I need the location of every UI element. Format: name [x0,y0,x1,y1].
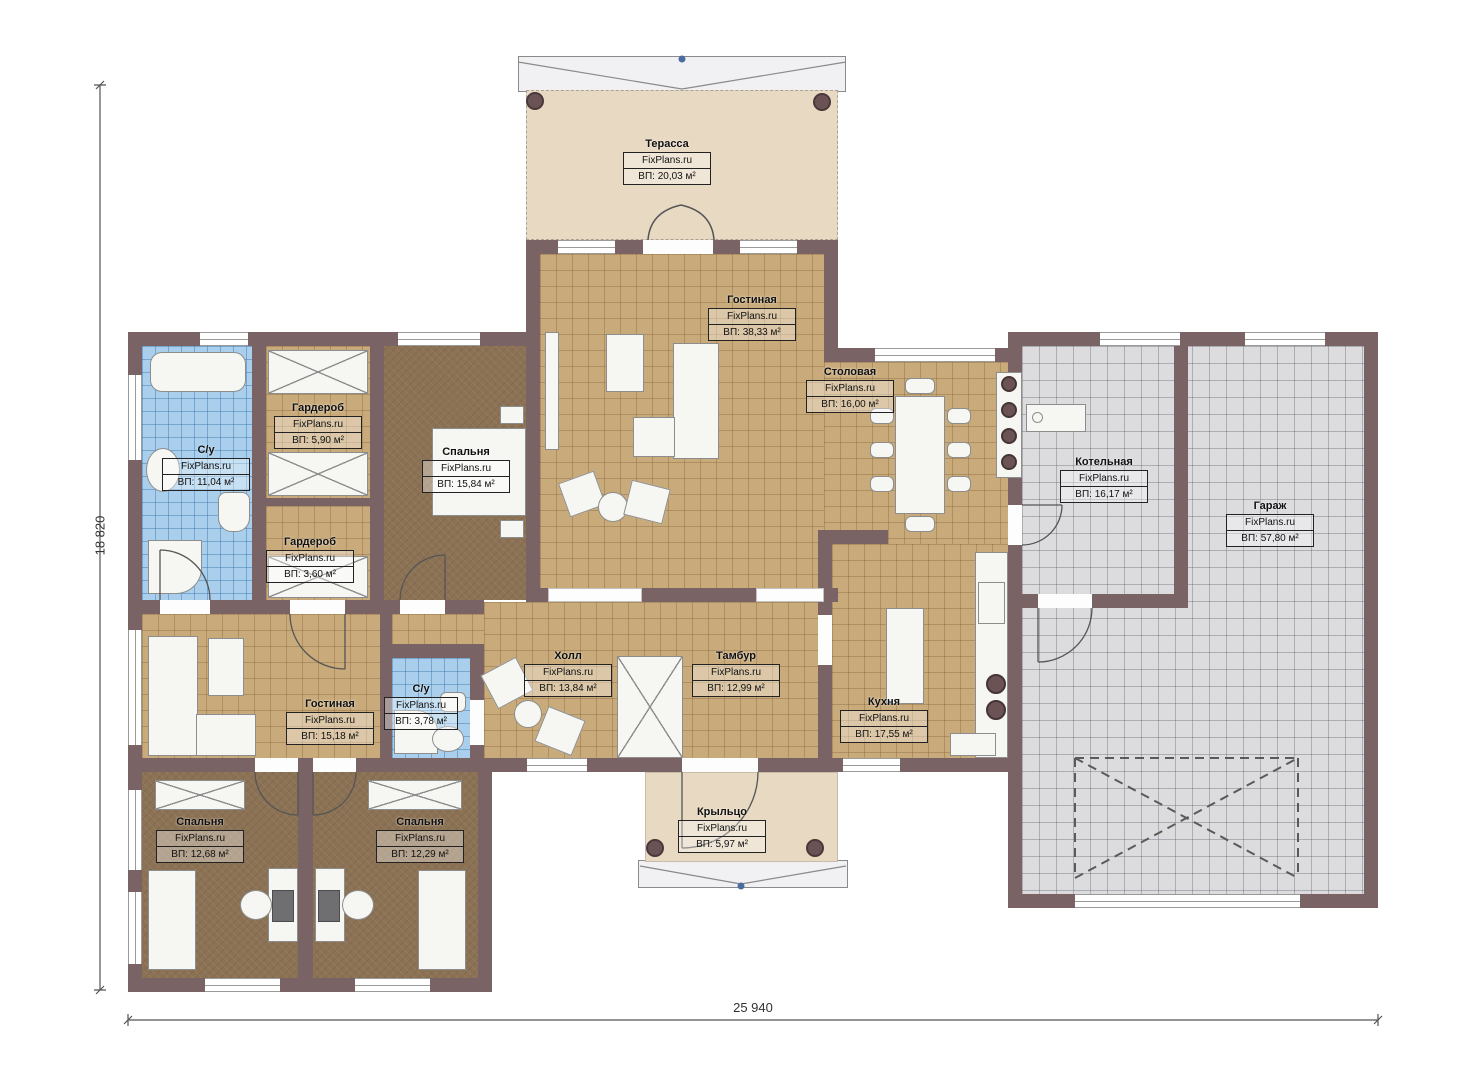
burner-icon [1001,428,1017,444]
window [875,348,995,362]
porch-column [646,839,664,857]
garage-gate [1075,894,1300,908]
door-opening [818,615,832,665]
shower [148,540,202,594]
room-label-bathroom-small: С/у FixPlans.ruВП: 3,78 м² [384,683,458,730]
window [527,758,587,772]
door-opening [313,758,356,772]
window [205,978,280,992]
room-label-porch: Крыльцо FixPlans.ruВП: 5,97 м² [678,806,766,853]
boiler-dial [1032,412,1043,423]
wall [1364,332,1378,908]
brand: FixPlans.ru [157,831,243,846]
room-label-boiler: Котельная FixPlans.ruВП: 16,17 м² [1060,456,1148,503]
closet [368,780,462,810]
toilet [218,492,250,532]
door-opening [1038,594,1092,608]
computer [318,890,340,922]
room-label-living-2: Гостиная FixPlans.ruВП: 15,18 м² [286,698,374,745]
sofa-chaise [196,714,256,756]
room-label-living-main: Гостиная FixPlans.ruВП: 38,33 м² [708,294,796,341]
chair [905,516,935,532]
cooktop-burner-icon [986,674,1006,694]
room-label-terrace: Терасса FixPlans.ruВП: 20,03 м² [623,138,711,185]
sofa [673,343,719,459]
wall [824,240,838,362]
floor-plan: Терасса FixPlans.ruВП: 20,03 м² Гостиная… [0,0,1474,1080]
terrace-column [813,93,831,111]
burner-icon [1001,402,1017,418]
sofa-chaise [633,417,675,457]
brand: FixPlans.ru [385,698,457,713]
wall [298,772,313,978]
window [398,332,480,346]
room-label-bedroom-master: Спальня FixPlans.ruВП: 15,84 м² [422,446,510,493]
window [843,758,900,772]
passage-opening [548,588,642,602]
terrace-column [526,92,544,110]
window [128,790,142,870]
window [128,375,142,460]
room-label-garage: Гараж FixPlans.ruВП: 57,80 м² [1226,500,1314,547]
passage-opening [756,588,824,602]
wall-boiler-bottom [1008,594,1188,608]
bed [148,870,196,970]
desk-chair [240,890,272,920]
wall [370,346,384,600]
door-opening [290,600,345,614]
burner-icon [1001,376,1017,392]
bathtub [150,352,246,392]
chair [947,476,971,492]
round-table [514,700,542,728]
chair [947,408,971,424]
wall [380,644,484,658]
coffee-table [208,638,244,696]
window [128,892,142,964]
wall [128,978,492,992]
brand: FixPlans.ru [423,461,509,476]
brand: FixPlans.ru [807,381,893,396]
bed [418,870,466,970]
closet [268,452,368,496]
kitchen-island [886,608,924,704]
hall-closet [617,656,683,758]
nightstand [500,520,524,538]
window [740,240,797,254]
room-label-dining: Столовая FixPlans.ruВП: 16,00 м² [806,366,894,413]
brand: FixPlans.ru [287,713,373,728]
door-opening [470,700,484,745]
brand: FixPlans.ru [163,459,249,474]
brand: FixPlans.ru [679,821,765,836]
wall-boiler-right [1174,346,1188,598]
chair [905,378,935,394]
brand: FixPlans.ru [1227,515,1313,530]
rug [606,334,644,392]
brand: FixPlans.ru [624,153,710,168]
door-opening-porch [682,758,758,772]
brand: FixPlans.ru [841,711,927,726]
chair [870,442,894,458]
window [128,630,142,745]
brand: FixPlans.ru [709,309,795,324]
door-opening [1008,505,1022,545]
tv-stand [545,332,559,450]
wall [526,240,540,602]
closet [155,780,245,810]
wall [252,346,266,600]
room-label-kitchen: Кухня FixPlans.ruВП: 17,55 м² [840,696,928,743]
terrace-roof [518,56,846,92]
brand: FixPlans.ru [525,665,611,680]
window [200,332,248,346]
room-label-wardrobe-1: Гардероб FixPlans.ruВП: 5,90 м² [274,402,362,449]
room-label-tambur: Тамбур FixPlans.ruВП: 12,99 м² [692,650,780,697]
sofa [148,636,198,756]
room-label-wardrobe-2: Гардероб FixPlans.ruВП: 3,60 м² [266,536,354,583]
kitchen-sink [978,582,1005,624]
desk-chair [342,890,374,920]
dining-table [895,396,945,514]
burner-icon [1001,454,1017,470]
coffee-table [598,492,628,522]
door-opening-terrace [643,240,713,254]
brand: FixPlans.ru [377,831,463,846]
porch-roof [638,860,848,888]
door-opening [160,600,210,614]
room-label-bathroom-main: С/у FixPlans.ruВП: 11,04 м² [162,444,250,491]
wall [478,758,492,992]
room-label-bedroom-right: Спальня FixPlans.ruВП: 12,29 м² [376,816,464,863]
dimension-height: 18 820 [93,496,108,576]
brand: FixPlans.ru [693,665,779,680]
brand: FixPlans.ru [1061,471,1147,486]
window [558,240,615,254]
room-label-bedroom-left: Спальня FixPlans.ruВП: 12,68 м² [156,816,244,863]
floor-corridor [392,614,484,644]
cooktop-burner-icon [986,700,1006,720]
door-opening [400,600,445,614]
chair [870,476,894,492]
chair [947,442,971,458]
window [1245,332,1325,346]
closet [268,350,368,394]
brand: FixPlans.ru [267,551,353,566]
dimension-width: 25 940 [698,1000,808,1015]
porch-column [806,839,824,857]
wall [266,498,370,506]
door-opening [255,758,298,772]
room-label-hall: Холл FixPlans.ruВП: 13,84 м² [524,650,612,697]
wall [818,530,888,544]
window [355,978,430,992]
kitchen-appliance [950,733,996,756]
computer [272,890,294,922]
window [1100,332,1180,346]
brand: FixPlans.ru [275,417,361,432]
nightstand [500,406,524,424]
